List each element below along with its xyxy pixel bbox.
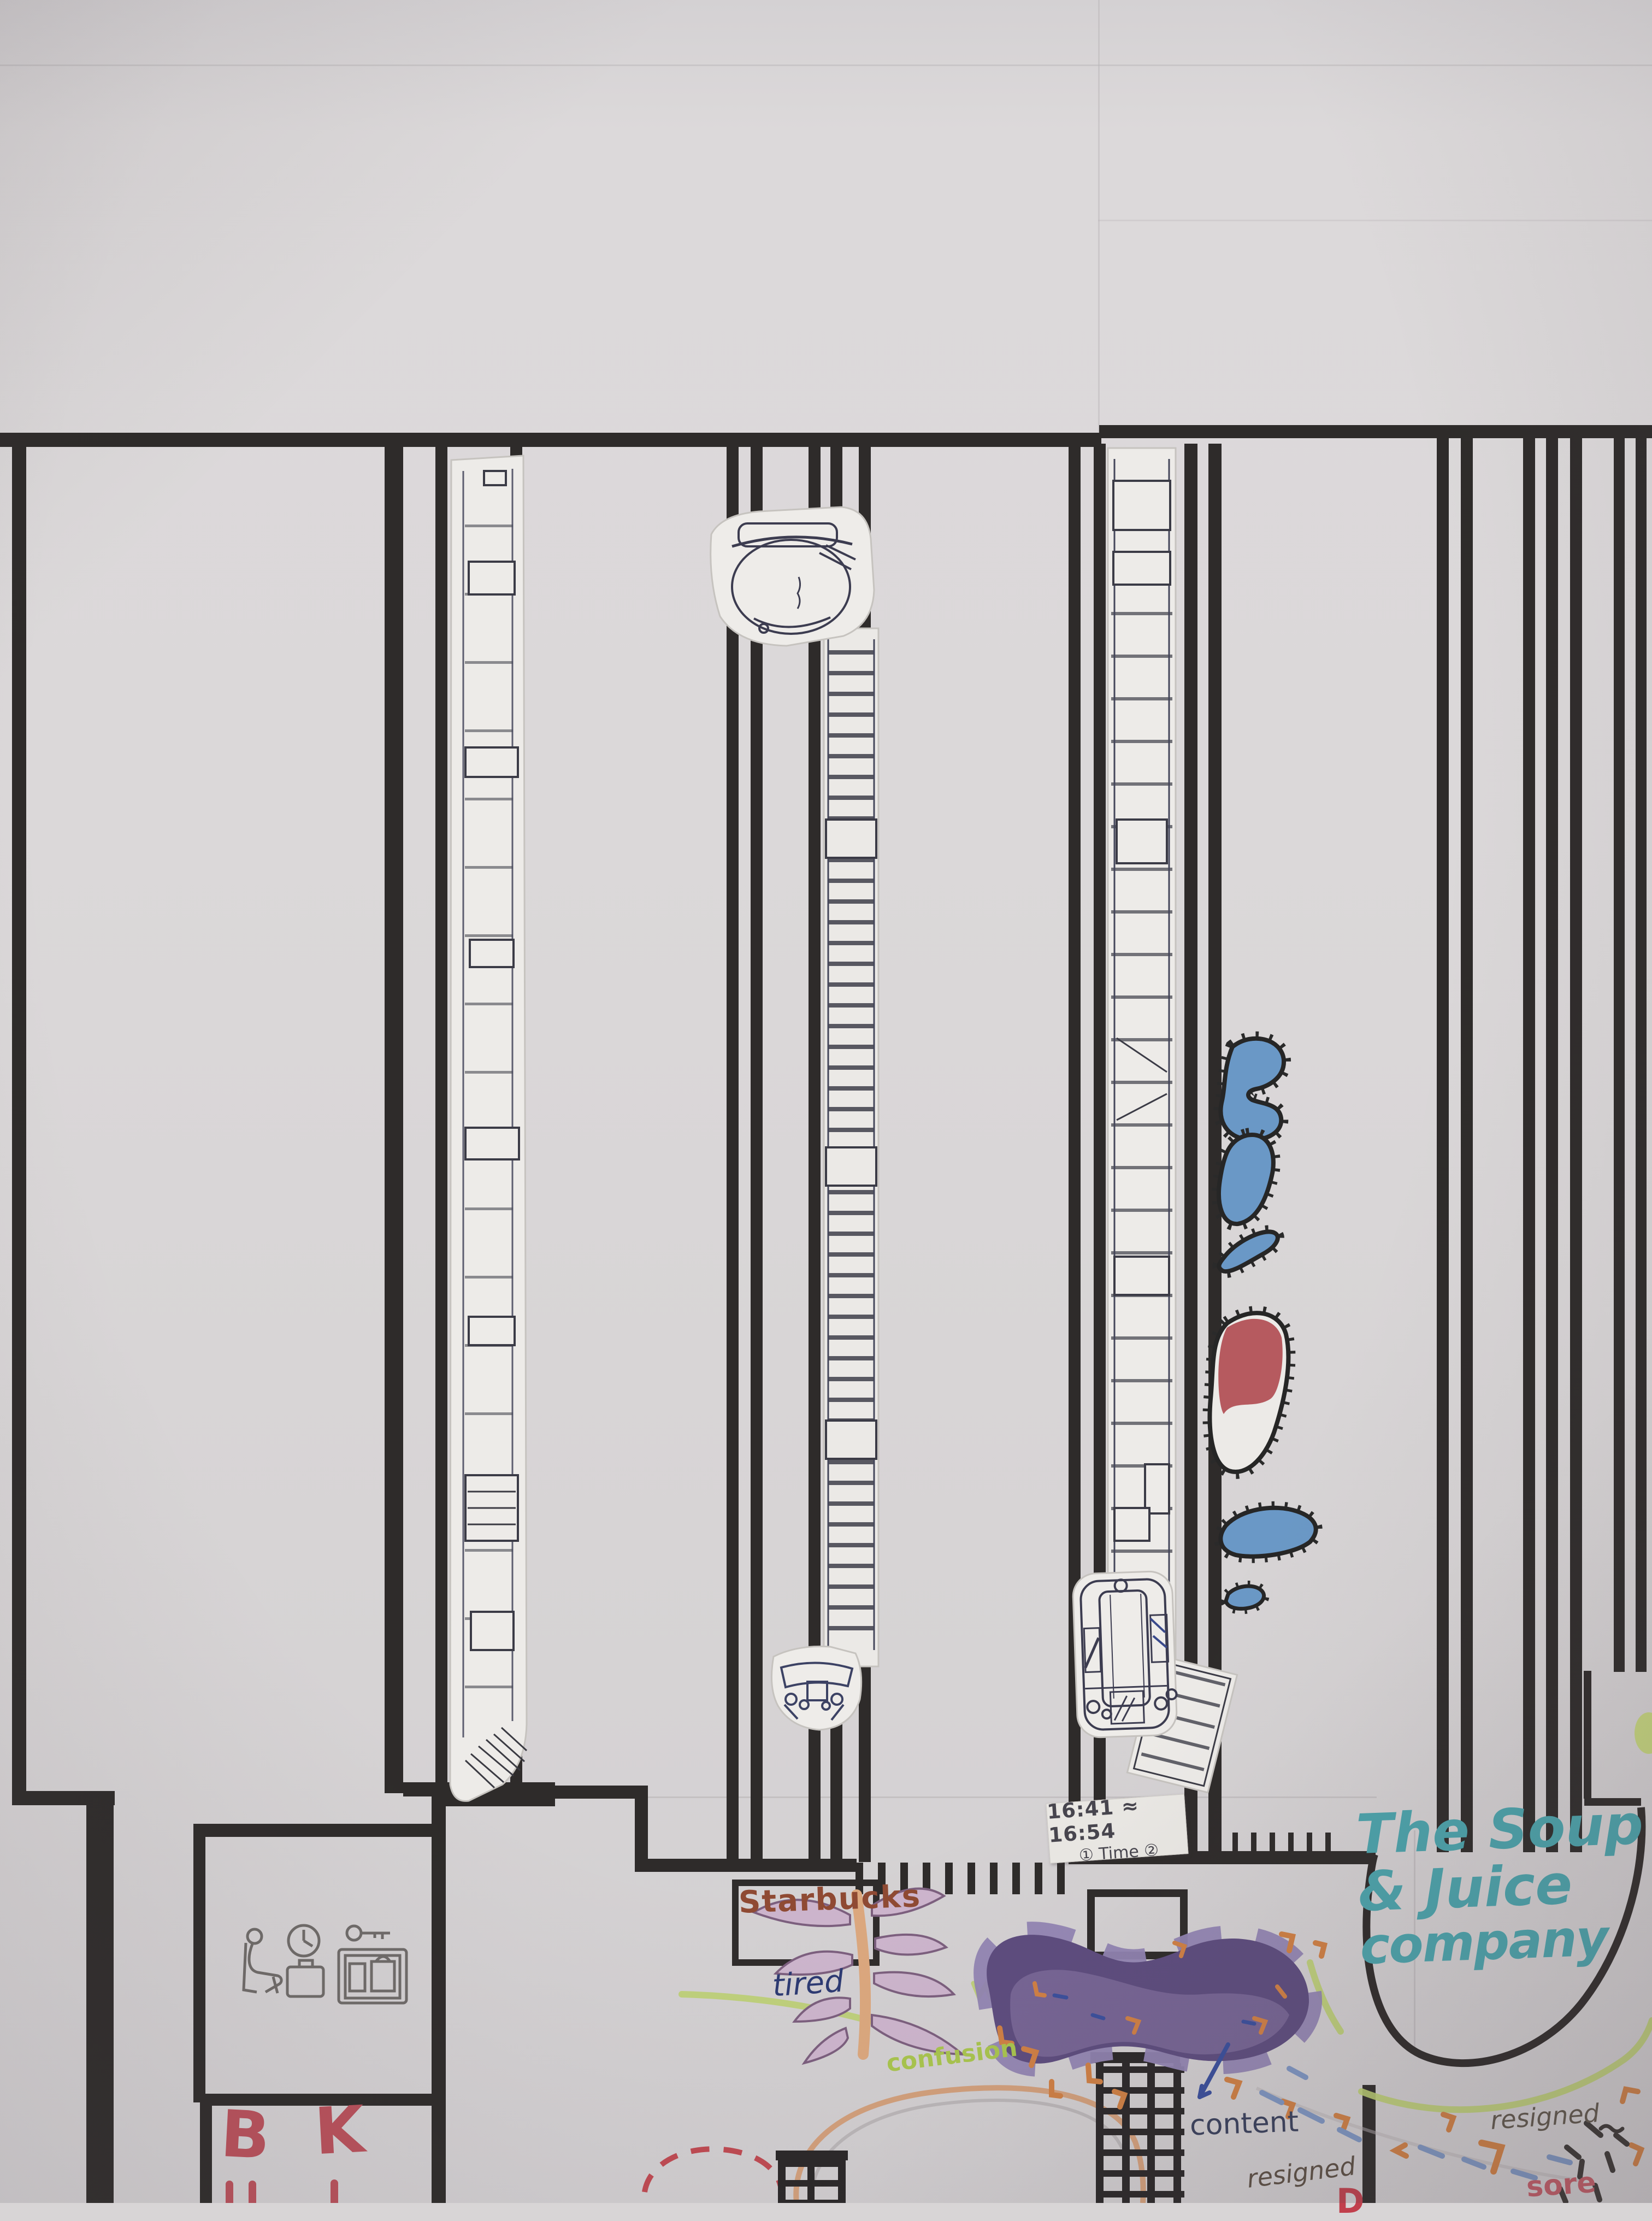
- burger-king-letter-k: K: [313, 2096, 367, 2166]
- key-icon: [347, 1926, 390, 1940]
- partial-red-text: D: [1336, 2183, 1364, 2219]
- sore-label: sore: [1525, 2168, 1597, 2202]
- blob-blue-hook: [1221, 1039, 1284, 1140]
- soup-juice-line1: The Soup: [1355, 1796, 1641, 1863]
- room-icons: [244, 1925, 406, 2003]
- clock-icon: [288, 1925, 319, 1956]
- tired-label: tired: [771, 1966, 845, 2003]
- pencil-queue-loop: [796, 2088, 1584, 2203]
- seated-person-icon: [244, 1929, 281, 1993]
- sticky-note-times-text: 16:41 ≈ 16:54: [1046, 1790, 1187, 1847]
- sticky-note-times: 16:41 ≈ 16:54 ① Time ②: [1046, 1794, 1188, 1863]
- briefcase-icon: [287, 1960, 323, 1996]
- content-label: content: [1189, 2107, 1299, 2141]
- partial-red-letters: [229, 2183, 334, 2203]
- blob-blue-oval: [1219, 1135, 1273, 1224]
- blob-red: [1209, 1313, 1288, 1472]
- soup-juice-line3: company: [1359, 1911, 1645, 1973]
- resigned-right-label: resigned: [1490, 2100, 1601, 2134]
- blob-blue-wide: [1220, 1508, 1315, 1557]
- red-dashed-area: [645, 2149, 781, 2203]
- burger-king-letter-b: B: [219, 2100, 272, 2170]
- luggage-locker-icon: [339, 1949, 406, 2003]
- green-dot: [1635, 1712, 1652, 1754]
- escalator-left: [776, 2151, 848, 2203]
- train-sketch-1: [450, 456, 527, 1801]
- soup-juice-sign: The Soup & Juice company: [1355, 1796, 1645, 1973]
- blob-blue-small: [1226, 1586, 1264, 1609]
- station-map-photo: 16:41 ≈ 16:54 ① Time ② Starbucks tired c…: [0, 0, 1652, 2203]
- crowd-blobs: [1209, 1039, 1315, 1609]
- blob-blue-sliver: [1219, 1232, 1277, 1271]
- starbucks-label: Starbucks: [738, 1881, 922, 1919]
